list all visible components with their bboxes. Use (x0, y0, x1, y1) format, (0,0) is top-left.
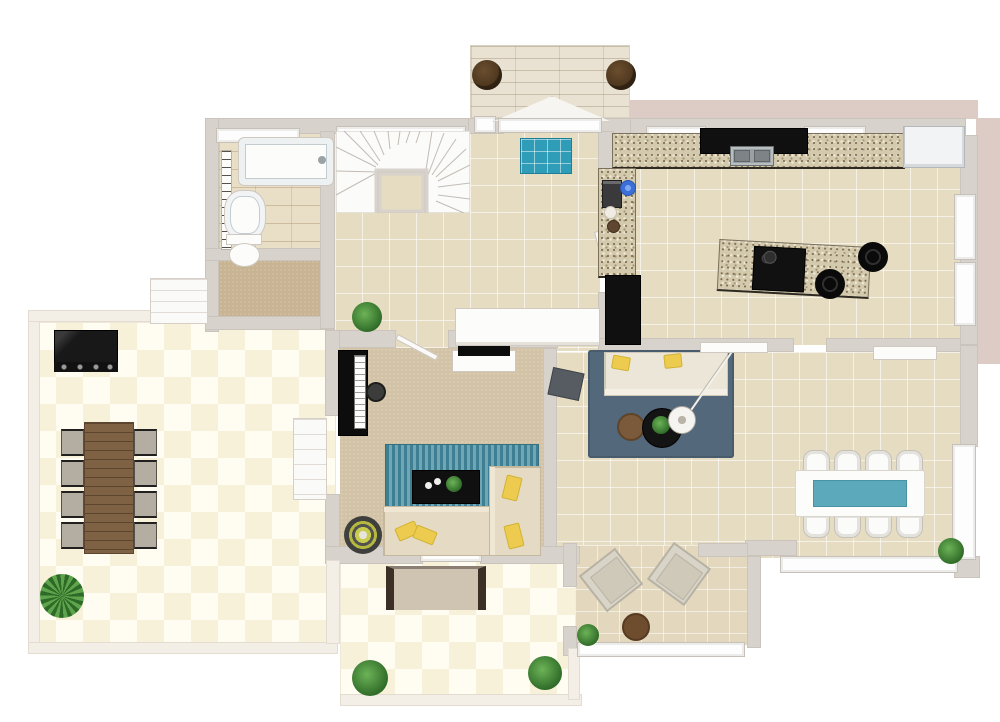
porch-curb-bottom (340, 694, 582, 706)
porch-bush-left (352, 660, 388, 696)
kitchen-island (717, 239, 872, 299)
dining-console (873, 346, 937, 360)
exterior-wall-right (976, 118, 1000, 364)
porch-bench (386, 566, 486, 610)
sink-basin-left (734, 150, 750, 162)
round-target-rug (344, 516, 382, 554)
family-door-steps (293, 418, 327, 500)
front-door (498, 118, 602, 133)
dining-plant (938, 538, 964, 564)
dining-chair-bottom-2 (834, 514, 861, 538)
wall-dining-bottom-left (745, 540, 797, 556)
tall-black-cabinet (605, 275, 641, 345)
patio-chair-l3 (61, 491, 84, 518)
bathtub-faucet (318, 156, 326, 164)
sunroom-round-table (622, 613, 650, 641)
brown-canister (607, 220, 620, 233)
island-cooktop (752, 246, 806, 293)
living-console (700, 342, 768, 353)
coffee-table-plant (446, 476, 462, 492)
dining-table-glass (813, 480, 907, 507)
deck-planter-right (606, 60, 636, 90)
dining-chair-bottom-4 (896, 514, 923, 538)
blue-bowl (620, 180, 636, 196)
refrigerator (903, 126, 965, 168)
patio-chair-r4 (134, 522, 157, 549)
dining-chair-bottom-3 (865, 514, 892, 538)
entry-doormat (520, 138, 572, 174)
sunroom-window-bottom (577, 642, 745, 657)
kitchen-window-right-1 (954, 194, 976, 260)
wall-dining-right (960, 345, 978, 447)
patio-lowwall-top (28, 310, 156, 322)
floor-plan (0, 0, 1000, 722)
bbq-grill-knobs (54, 362, 118, 372)
brown-side-table (617, 413, 645, 441)
exterior-wall-top (630, 100, 978, 119)
hall-sideboard (455, 308, 600, 346)
sink-basin-right (754, 150, 770, 162)
bar-stool-2 (815, 269, 845, 299)
piano-stool (366, 382, 386, 402)
porch-bush-right (528, 656, 562, 690)
arc-lamp-shade (668, 406, 696, 434)
entry-sidelight (474, 116, 496, 133)
dining-window-bottom (780, 556, 958, 573)
wall-sunroom-right (747, 556, 761, 648)
coffee-machine (602, 180, 622, 208)
patio-chair-l1 (61, 429, 84, 456)
toilet-bowl (229, 243, 260, 267)
patio-chair-l4 (61, 522, 84, 549)
closet-floor (219, 260, 322, 320)
white-canister (604, 206, 617, 219)
sunroom-bush (577, 624, 599, 646)
patio-porch-curb (326, 560, 340, 644)
wall-sunroom-top (698, 543, 748, 557)
hall-plant (352, 302, 382, 332)
kitchen-double-sink (730, 146, 774, 166)
garden-steps-top (150, 278, 208, 324)
pillow-living-2 (663, 353, 682, 369)
dining-chair-bottom-1 (803, 514, 830, 538)
piano-keys (354, 355, 366, 429)
patio-chair-r1 (134, 429, 157, 456)
patio-chair-l2 (61, 460, 84, 487)
pillow-living-1 (611, 355, 631, 372)
deck-planter-left (472, 60, 502, 90)
bbq-grill (54, 330, 118, 364)
coffee-table-plate-2 (434, 478, 441, 485)
television (458, 346, 510, 356)
coffee-table-plate-1 (425, 482, 432, 489)
patio-curb-bottom (28, 642, 338, 654)
wall-closet-bottom (205, 316, 335, 330)
bar-stool-1 (858, 242, 888, 272)
wall-sunroom-left-a (563, 543, 577, 587)
patio-curb-left (28, 320, 40, 654)
patio-chair-r2 (134, 460, 157, 487)
washbasin (224, 190, 266, 240)
patio-chair-r3 (134, 491, 157, 518)
kitchen-window-right-2 (954, 262, 976, 326)
winder-staircase (336, 131, 470, 213)
patio-palm-plant (40, 574, 84, 618)
outdoor-dining-table (84, 422, 134, 554)
